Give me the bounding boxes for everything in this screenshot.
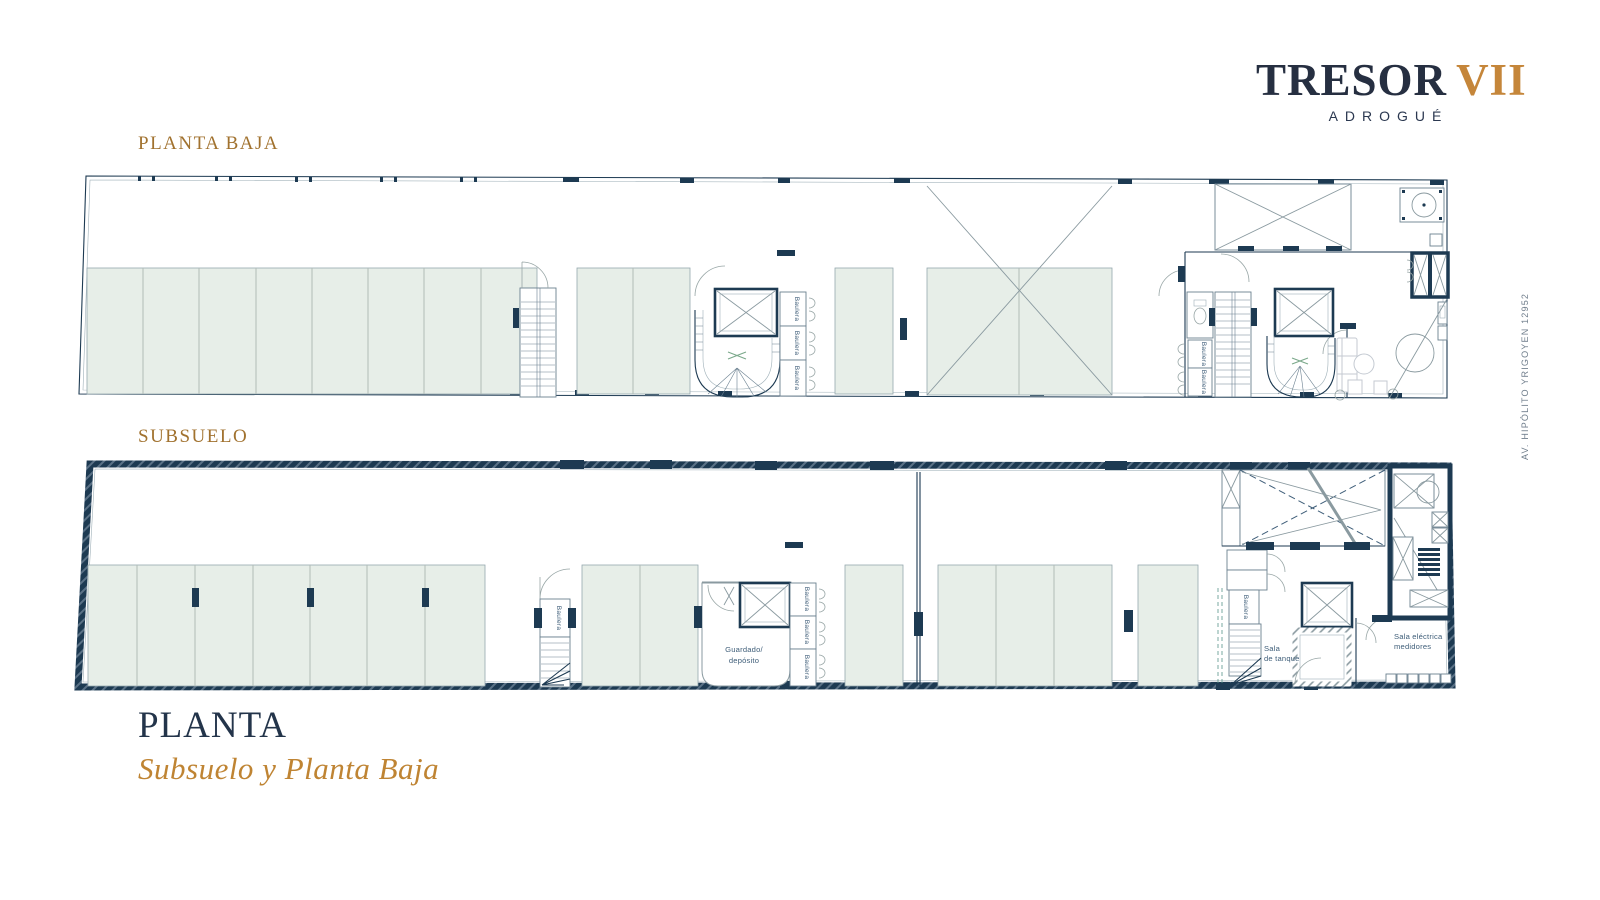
pb-column bbox=[900, 318, 907, 340]
sala-electrica-label-line1: Sala eléctrica bbox=[1394, 632, 1443, 641]
logo-wordmark: TRESORVII bbox=[1256, 58, 1514, 103]
sb-machine-room bbox=[1390, 466, 1450, 618]
baulera-label: Baulera bbox=[793, 366, 800, 391]
pb-roof-equipment bbox=[1400, 188, 1444, 246]
pb-skylight bbox=[1215, 184, 1351, 251]
plate-title: PLANTA Subsuelo y Planta Baja bbox=[138, 704, 439, 787]
baulera-label: Baulera bbox=[793, 331, 800, 356]
pb-core-a: Baulera Baulera Baulera bbox=[695, 266, 815, 397]
baulera-label: Baulera bbox=[1242, 595, 1249, 620]
baulera-label: Baulera bbox=[793, 297, 800, 322]
guardado-label-line1: Guardado/ bbox=[725, 645, 763, 654]
logo-subtitle: ADROGUÉ bbox=[1256, 109, 1514, 123]
logo: TRESORVII ADROGUÉ bbox=[1256, 58, 1514, 123]
pb-column bbox=[777, 250, 795, 256]
baulera-label: Baulera bbox=[803, 655, 810, 680]
sala-tanque-label-line2: de tanque bbox=[1264, 654, 1300, 663]
logo-name: TRESOR bbox=[1256, 55, 1447, 105]
plate-title-sub: Subsuelo y Planta Baja bbox=[138, 751, 439, 787]
pb-lobby-furniture bbox=[1335, 334, 1434, 400]
pb-parking-stalls bbox=[87, 268, 1112, 395]
sb-sala-electrica: Sala eléctrica medidores bbox=[1356, 615, 1451, 686]
sb-stair-left: Baulera bbox=[534, 569, 576, 687]
sala-tanque-label-line1: Sala bbox=[1264, 644, 1281, 653]
sb-tank-room: Sala de tanque bbox=[1264, 583, 1352, 684]
logo-numeral: VII bbox=[1456, 55, 1527, 105]
pb-core-b: Baulera Baulera bbox=[1178, 289, 1335, 397]
guardado-label-line2: depósito bbox=[729, 656, 759, 665]
baulera-label: Baulera bbox=[803, 620, 810, 645]
page: TRESORVII ADROGUÉ PLANTA BAJA SUBSUELO bbox=[0, 0, 1600, 900]
baulera-label: Baulera bbox=[803, 587, 810, 612]
sb-stair-right: Baulera bbox=[1218, 542, 1285, 685]
subsuelo-plan: Baulera Guardado/ depósito Baulera Baule… bbox=[76, 458, 1460, 694]
sb-core-guardado: Guardado/ depósito Baulera Baulera Baule… bbox=[694, 583, 825, 686]
sala-electrica-label-line2: medidores bbox=[1394, 642, 1431, 651]
baulera-label: Baulera bbox=[1200, 342, 1207, 367]
pb-elevator-shafts bbox=[1390, 253, 1448, 397]
sb-parking-stalls bbox=[88, 565, 1198, 686]
plate-title-main: PLANTA bbox=[138, 704, 439, 747]
street-address: AV. HIPÓLITO YRIGOYEN 12952 bbox=[1520, 310, 1530, 460]
baulera-label: Baulera bbox=[555, 606, 562, 631]
planta-baja-plan: Baulera Baulera Baulera bbox=[78, 168, 1450, 404]
planta-baja-label: PLANTA BAJA bbox=[138, 133, 279, 155]
baulera-label: Baulera bbox=[1200, 370, 1207, 395]
subsuelo-label: SUBSUELO bbox=[138, 426, 248, 448]
